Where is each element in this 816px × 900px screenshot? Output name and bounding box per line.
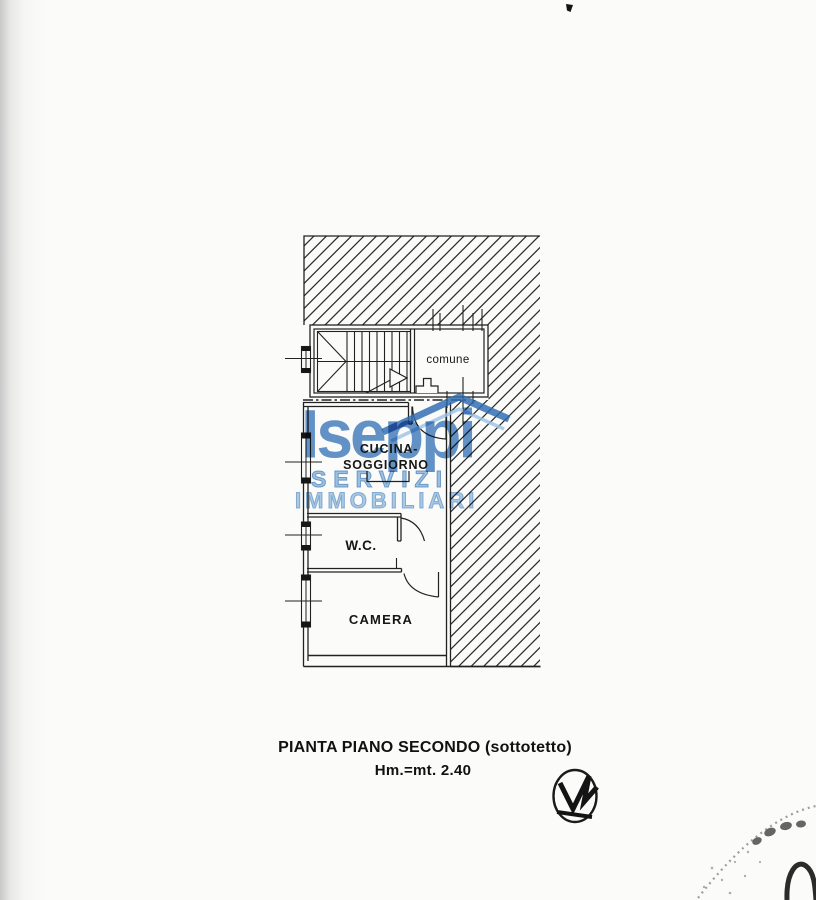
room-label-kitchen-line1: CUCINA-	[360, 442, 418, 456]
kitchen-label-bracket	[367, 471, 409, 482]
scan-speck	[566, 4, 573, 12]
room-label-bedroom: CAMERA	[349, 612, 413, 627]
plan-caption-height: Hm.=mt. 2.40	[375, 762, 472, 779]
hatch-region	[304, 236, 541, 667]
room-label-comune: comune	[426, 354, 469, 366]
room-label-kitchen-line2: SOGGIORNO	[343, 458, 429, 472]
partial-stamp-icon	[698, 806, 816, 900]
room-label-wc: W.C.	[345, 538, 376, 553]
plan-caption-title: PIANTA PIANO SECONDO (sottotetto)	[278, 739, 572, 757]
window-bedroom	[285, 575, 322, 627]
windows-left-wall	[285, 433, 322, 627]
surveyor-logo-icon	[554, 770, 598, 822]
window-wc	[285, 522, 322, 550]
scan-page: { "page": { "background": "#fbfbfa", "in…	[0, 0, 816, 900]
window-kitchen	[285, 433, 322, 483]
